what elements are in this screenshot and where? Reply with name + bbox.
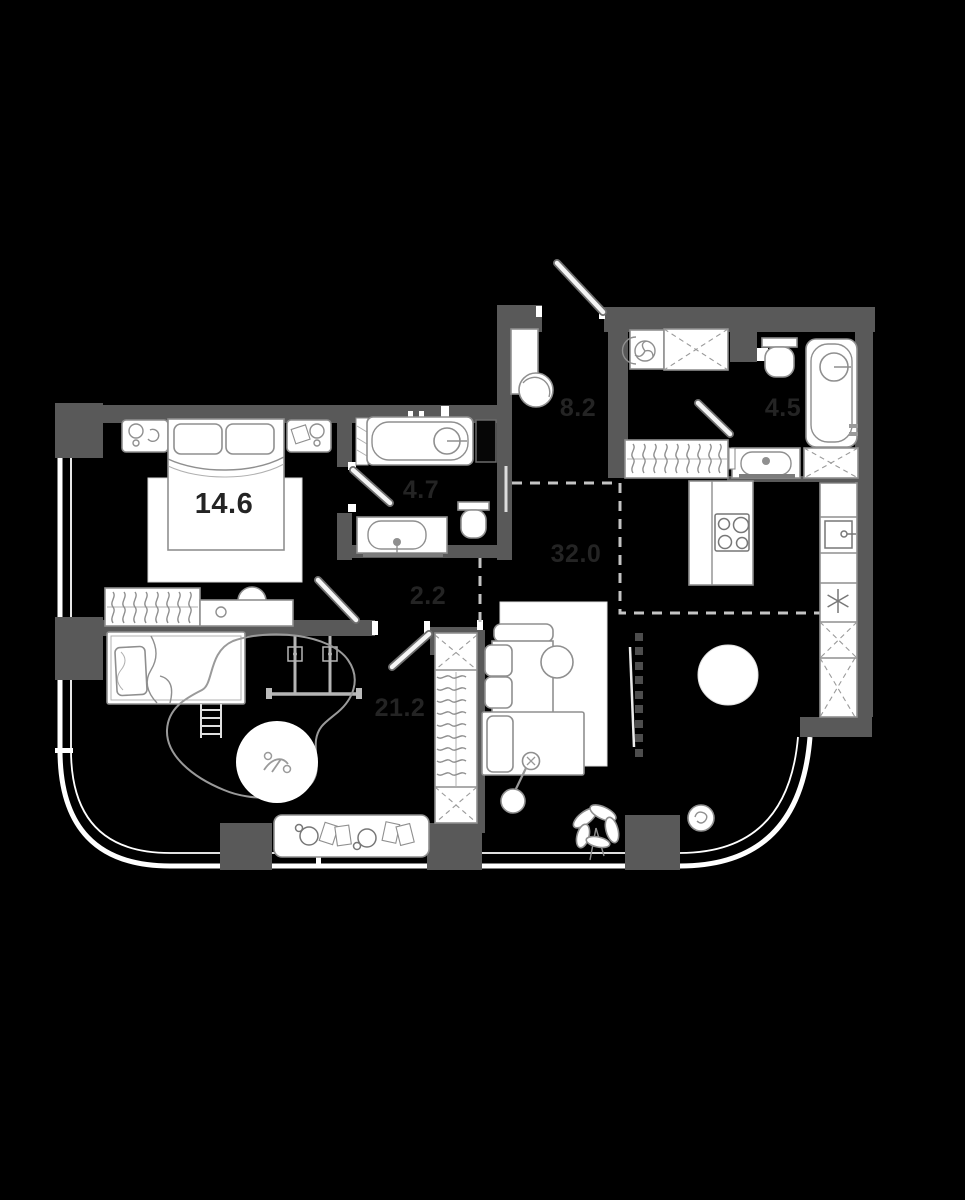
child-bed xyxy=(107,632,245,704)
nightstand-right xyxy=(287,420,331,452)
room-label-ensuite: 4.7 xyxy=(403,476,439,504)
side-table xyxy=(541,646,573,678)
sofa-cushion xyxy=(487,716,513,772)
floor-plan: 14.6 4. xyxy=(0,0,965,1200)
double-bed xyxy=(168,419,284,550)
room-label-children: 21.2 xyxy=(375,694,426,722)
children-room: 21.2 xyxy=(107,632,477,857)
washbasin xyxy=(357,517,447,557)
pillow xyxy=(174,424,222,454)
hall-closet xyxy=(625,440,735,478)
potted-plant xyxy=(688,805,714,831)
dresser-with-mirror xyxy=(200,587,293,626)
tv-unit xyxy=(630,633,643,757)
kitchen-island xyxy=(689,481,753,585)
bed-ladder xyxy=(201,704,221,738)
room-label-living: 32.0 xyxy=(551,540,602,568)
entrance-door xyxy=(557,263,603,312)
floor-plan-canvas: 14.6 4. xyxy=(0,0,965,1200)
closet-handle xyxy=(729,448,735,469)
round-table xyxy=(698,645,758,705)
bathtub xyxy=(367,417,473,465)
entrance-hall: 8.2 xyxy=(511,263,603,422)
bedroom: 14.6 xyxy=(105,419,356,626)
kitchen-counter xyxy=(820,483,857,717)
room-label-bedroom: 14.6 xyxy=(195,488,253,520)
bedroom-wardrobe xyxy=(105,588,200,626)
window-mullion xyxy=(55,748,73,753)
bedroom-door xyxy=(318,580,356,620)
room-label-bathroom: 4.5 xyxy=(765,394,801,422)
bathroom-door xyxy=(698,403,730,434)
toilet xyxy=(762,338,797,377)
pillow xyxy=(226,424,274,454)
room-label-corridor: 2.2 xyxy=(410,582,446,610)
window-desk xyxy=(274,815,429,857)
swing-set xyxy=(266,636,362,699)
laundry-counter xyxy=(664,329,728,370)
sofa-cushion xyxy=(485,645,512,676)
tv-screen xyxy=(630,647,634,747)
living-kitchen: 32.0 xyxy=(482,440,857,860)
corridor: 2.2 xyxy=(410,582,446,610)
duct-box xyxy=(476,420,496,462)
bathroom-cabinet xyxy=(804,448,858,478)
plant xyxy=(570,802,621,860)
children-door xyxy=(392,634,429,667)
ensuite-bathroom: 4.7 xyxy=(353,417,506,557)
pouf xyxy=(519,373,553,407)
bathtub xyxy=(806,339,858,447)
nightstand-left xyxy=(122,420,168,452)
children-wardrobe xyxy=(435,633,477,823)
toilet xyxy=(458,502,489,538)
sofa-cushion xyxy=(485,677,512,708)
washing-machine xyxy=(623,330,665,369)
room-label-hall: 8.2 xyxy=(560,394,596,422)
washbasin xyxy=(732,448,800,478)
play-rug xyxy=(236,721,318,803)
ensuite-door xyxy=(353,470,390,503)
